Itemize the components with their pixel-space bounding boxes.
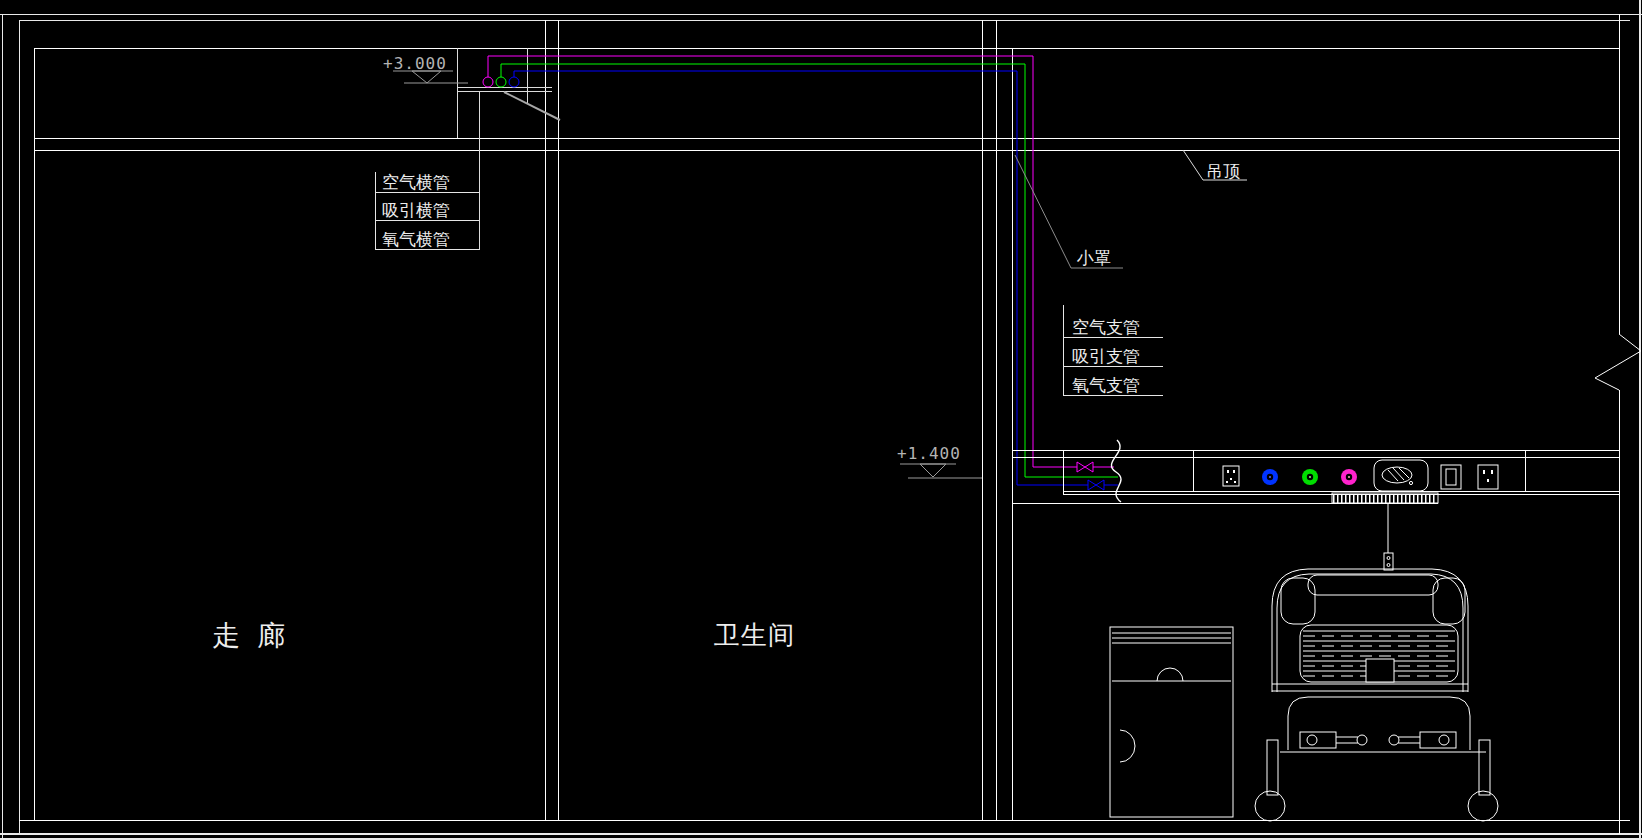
valve-magenta-icon (1077, 462, 1093, 472)
ceiling-label: 吊顶 (1206, 161, 1240, 181)
drawing-canvas: 空气横管 吸引横管 氧气横管 +3.000 +1.400 (0, 0, 1642, 840)
elevation-3000-value: +3.000 (383, 54, 447, 73)
label-oxygen-branch-pipe: 氧气支管 (1072, 375, 1140, 395)
hanging-rod (1384, 503, 1393, 570)
pipe-blue-run (514, 71, 1088, 485)
horizontal-pipe-labels: 空气横管 吸引横管 氧气横管 (375, 172, 479, 249)
ceiling-label-group: 吊顶 (1183, 150, 1247, 181)
gas-pipes (483, 56, 1118, 490)
hospital-bed (1255, 569, 1498, 821)
room-label-corridor: 走 廊 (212, 619, 289, 652)
elevation-marker-1400: +1.400 (897, 444, 982, 478)
headboard-panel (1308, 575, 1438, 595)
sheet-border (0, 0, 1642, 840)
bumper-left (1281, 578, 1315, 624)
small-cover-label-group: 小罩 (1015, 155, 1123, 268)
pipe-magenta-outlet-circle (483, 77, 493, 87)
pipe-magenta-run (488, 56, 1077, 467)
gas-outlet-green-icon (1302, 469, 1318, 485)
crank-handle-right (1389, 732, 1456, 748)
pipe-green-outlet-circle (496, 77, 506, 87)
mattress-section (1300, 625, 1458, 682)
break-mark-right-wall (1595, 334, 1641, 390)
branch-pipe-labels: 空气支管 吸引支管 氧气支管 (1063, 305, 1163, 396)
bed-leg-left (1267, 740, 1278, 795)
crank-handle-left (1300, 732, 1367, 748)
drawer-handle (1157, 668, 1183, 681)
room-label-bathroom: 卫生间 (714, 620, 795, 650)
power-socket-2-icon (1478, 465, 1498, 489)
cad-drawing-viewport: 空气横管 吸引横管 氧气横管 +3.000 +1.400 (0, 0, 1642, 840)
gas-outlet-blue-icon (1262, 469, 1278, 485)
label-oxygen-horizontal-pipe: 氧气横管 (382, 229, 450, 249)
power-socket-icon (1223, 466, 1239, 486)
elevation-marker-3000: +3.000 (383, 54, 468, 83)
elevation-1400-value: +1.400 (897, 444, 961, 463)
small-cover-label: 小罩 (1076, 248, 1111, 268)
valve-blue-icon (1088, 480, 1104, 490)
reading-light-icon (1374, 460, 1428, 491)
bedside-cabinet (1110, 627, 1233, 817)
pipe-blue-outlet-circle (509, 77, 519, 87)
pipe-green-run (501, 64, 1118, 477)
door-handle (1120, 730, 1135, 762)
switch-icon (1441, 465, 1461, 489)
label-air-branch-pipe: 空气支管 (1072, 317, 1140, 337)
label-air-horizontal-pipe: 空气横管 (382, 172, 450, 192)
bed-leg-right (1479, 740, 1490, 795)
walls-structure (19, 14, 1630, 834)
shelf-brace-diagonal (504, 92, 560, 120)
label-suction-branch-pipe: 吸引支管 (1072, 346, 1140, 366)
label-suction-horizontal-pipe: 吸引横管 (382, 200, 450, 220)
pipe-break-squiggle (1111, 440, 1121, 502)
gas-outlet-magenta-icon (1341, 469, 1357, 485)
